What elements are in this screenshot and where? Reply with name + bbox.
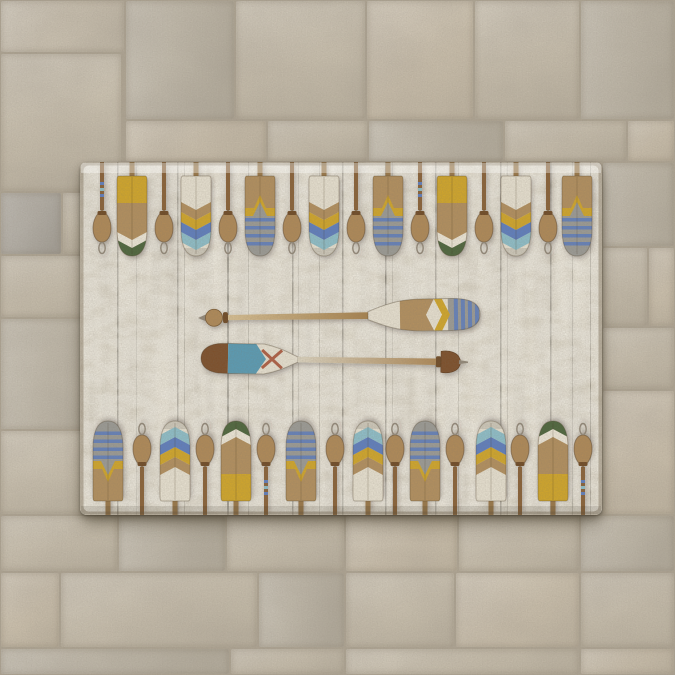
stone-tile	[475, 1, 579, 119]
stone-tile	[603, 163, 674, 246]
stone-tile	[126, 121, 266, 161]
stone-tile	[1, 1, 124, 52]
stone-tile	[603, 328, 674, 389]
oar-pattern-rug	[80, 162, 602, 515]
stone-tile	[505, 121, 626, 161]
stone-tile	[367, 1, 473, 119]
stone-tile	[346, 573, 454, 647]
stone-tile	[459, 516, 579, 571]
stone-tile	[628, 121, 674, 161]
stone-tile	[456, 573, 579, 647]
stone-tile	[236, 1, 365, 119]
stone-tile	[1, 516, 117, 571]
stone-tile	[346, 649, 579, 674]
stone-tile	[603, 248, 647, 326]
stone-tile	[1, 193, 61, 254]
stone-tile	[369, 121, 503, 161]
stone-tile	[581, 573, 674, 647]
stone-tile	[581, 1, 674, 119]
stone-tile	[581, 649, 674, 674]
stone-tile	[649, 248, 674, 326]
stone-tile	[1, 649, 229, 674]
stone-tile	[581, 516, 674, 571]
stone-tile	[346, 516, 457, 571]
stone-tile	[126, 1, 234, 119]
stone-tile	[259, 573, 344, 647]
stone-tile	[61, 573, 257, 647]
stone-tile	[119, 516, 225, 571]
stone-tile	[268, 121, 367, 161]
stone-tile	[603, 391, 674, 514]
stone-tile	[231, 649, 344, 674]
stone-tile	[227, 516, 344, 571]
scene: Rectangular area rug printed with rows o…	[0, 0, 675, 675]
stone-tile	[1, 573, 59, 647]
